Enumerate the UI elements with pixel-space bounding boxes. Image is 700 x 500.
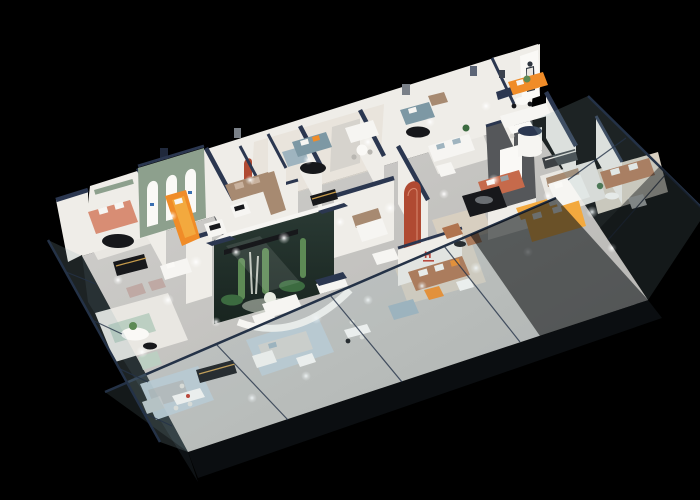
light-dot [425, 117, 435, 127]
light-dot [488, 174, 500, 186]
light-dot [113, 275, 123, 285]
wall-frame [470, 66, 477, 76]
wall-frame [402, 84, 410, 95]
potted-plant [463, 125, 470, 132]
chair [510, 134, 515, 139]
light-dot [211, 317, 221, 327]
arch-brand-mark [150, 203, 154, 206]
light-dot [136, 346, 148, 358]
glass-table [475, 196, 493, 204]
light-dot [167, 211, 177, 221]
light-dot [278, 232, 290, 244]
arch-brand-mark [188, 191, 192, 194]
light-dot [162, 294, 174, 306]
showroom-render: Isometric 3D cutaway render of a furnitu… [0, 0, 700, 500]
chair-black [512, 104, 517, 109]
light-dot [245, 175, 255, 185]
potted-plant [524, 76, 531, 83]
coffee-table-black [406, 127, 430, 138]
terrarium-bush [221, 295, 243, 306]
cactus [300, 238, 306, 278]
light-dot [231, 247, 241, 257]
wall-frame [234, 128, 241, 138]
coffee-table-black [300, 162, 326, 174]
chair [367, 149, 372, 154]
light-dot [190, 256, 202, 268]
table-plant [129, 322, 137, 330]
chair-black [528, 102, 533, 107]
light-dot [335, 217, 345, 227]
showroom-scene: Isometric 3D cutaway render of a furnitu… [0, 0, 700, 500]
column-base [518, 147, 542, 157]
light-dot [303, 155, 313, 165]
chair [351, 154, 356, 159]
light-dot [439, 189, 449, 199]
light-dot [384, 202, 396, 214]
light-dot [481, 101, 491, 111]
round-table [515, 97, 529, 105]
standee-head [527, 61, 532, 66]
light-dot [363, 137, 373, 147]
wall-frame [499, 70, 505, 78]
coffee-table-black [102, 234, 134, 248]
